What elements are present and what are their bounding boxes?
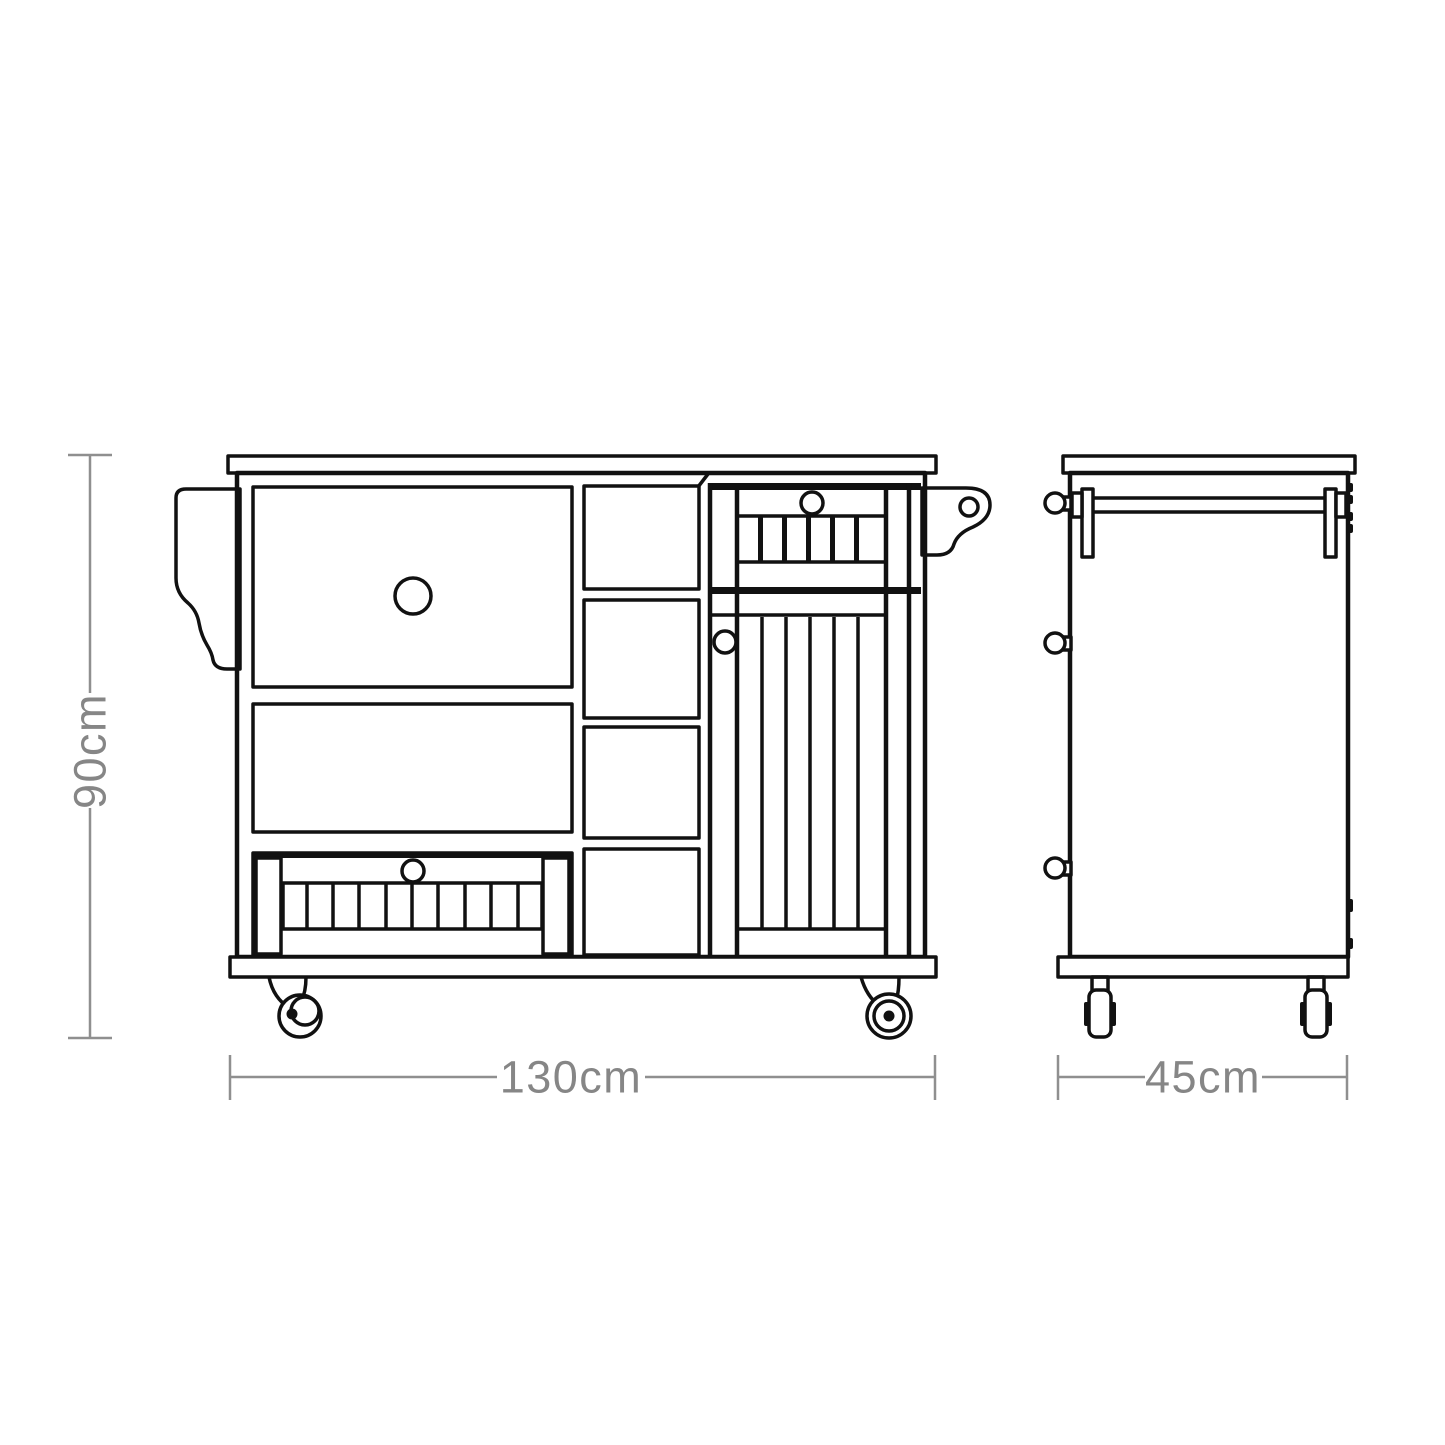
side-right-caster	[1300, 977, 1332, 1037]
hinge-bump	[1347, 899, 1353, 912]
kitchen-trolley-dimension-diagram: 90cm 130cm 45cm	[0, 0, 1445, 1445]
slat	[830, 516, 835, 562]
cubby-1	[584, 486, 699, 589]
caster-axle	[1084, 1002, 1089, 1026]
height-label: 90cm	[65, 693, 116, 809]
slat	[758, 516, 763, 562]
side-countertop	[1063, 456, 1355, 473]
caster-axle	[1327, 1002, 1332, 1026]
profile-knob-bottom	[1045, 858, 1071, 878]
hinge-bump	[1347, 938, 1353, 949]
side-left-caster	[1084, 977, 1116, 1037]
knob-cap	[1045, 633, 1065, 653]
slatted-drawer-right-stile	[543, 858, 569, 954]
towel-bar-rod	[1090, 498, 1326, 512]
cabinet-divider-rail	[708, 587, 921, 594]
towel-bar-endcap-left	[1072, 493, 1082, 517]
large-drawer	[253, 487, 572, 687]
front-countertop	[228, 456, 936, 473]
left-towel-holder-bracket	[176, 489, 240, 669]
hinge-bump	[1347, 483, 1353, 492]
front-base	[230, 957, 936, 977]
top-drawer-knob	[801, 492, 823, 514]
towel-bar-endcap-right	[1336, 493, 1346, 517]
side-view	[1045, 456, 1355, 1037]
side-base	[1058, 957, 1348, 977]
side-body	[1070, 473, 1348, 957]
slatted-drawer-knob	[402, 860, 424, 882]
height-dimension: 90cm	[65, 455, 116, 1038]
door-knob	[714, 631, 736, 653]
caster-wheel	[1305, 990, 1327, 1037]
slatted-drawer-bottom	[253, 853, 572, 957]
hinge-bump	[1347, 512, 1353, 521]
caster-axle	[1300, 1002, 1305, 1026]
width-dimension: 130cm	[230, 1052, 935, 1103]
slat	[806, 516, 811, 562]
profile-knob-top	[1045, 493, 1071, 513]
slat	[782, 516, 787, 562]
towel-bar	[1072, 489, 1346, 557]
cabinet-section	[708, 483, 921, 955]
cabinet-top-rail	[708, 483, 921, 490]
hinge-bump	[1347, 495, 1353, 504]
slatted-drawer-left-stile	[256, 858, 281, 954]
caster-axle	[1111, 1002, 1116, 1026]
cubby-2	[584, 600, 699, 718]
open-shelf	[253, 704, 572, 832]
front-left-caster	[269, 977, 321, 1037]
depth-label: 45cm	[1145, 1052, 1261, 1103]
diagram-canvas: 90cm 130cm 45cm	[0, 0, 1445, 1445]
cubby-3	[584, 727, 699, 838]
right-towel-bar-bracket	[922, 488, 990, 555]
knob-cap	[1045, 493, 1065, 513]
slatted-drawer-top	[737, 492, 886, 562]
width-label: 130cm	[500, 1052, 643, 1103]
cubby-4	[584, 849, 699, 955]
hinge-bump	[1347, 524, 1353, 533]
knob-cap	[1045, 858, 1065, 878]
caster-hub	[884, 1011, 895, 1022]
profile-knob-middle	[1045, 633, 1071, 653]
slat	[854, 516, 859, 562]
caster-wheel	[1089, 990, 1111, 1037]
large-drawer-knob	[395, 578, 431, 614]
caster-hub	[287, 1009, 298, 1020]
slatted-drawer-top-rail	[253, 853, 572, 858]
depth-dimension: 45cm	[1058, 1052, 1347, 1103]
front-right-caster	[861, 977, 911, 1038]
front-view	[176, 456, 990, 1038]
